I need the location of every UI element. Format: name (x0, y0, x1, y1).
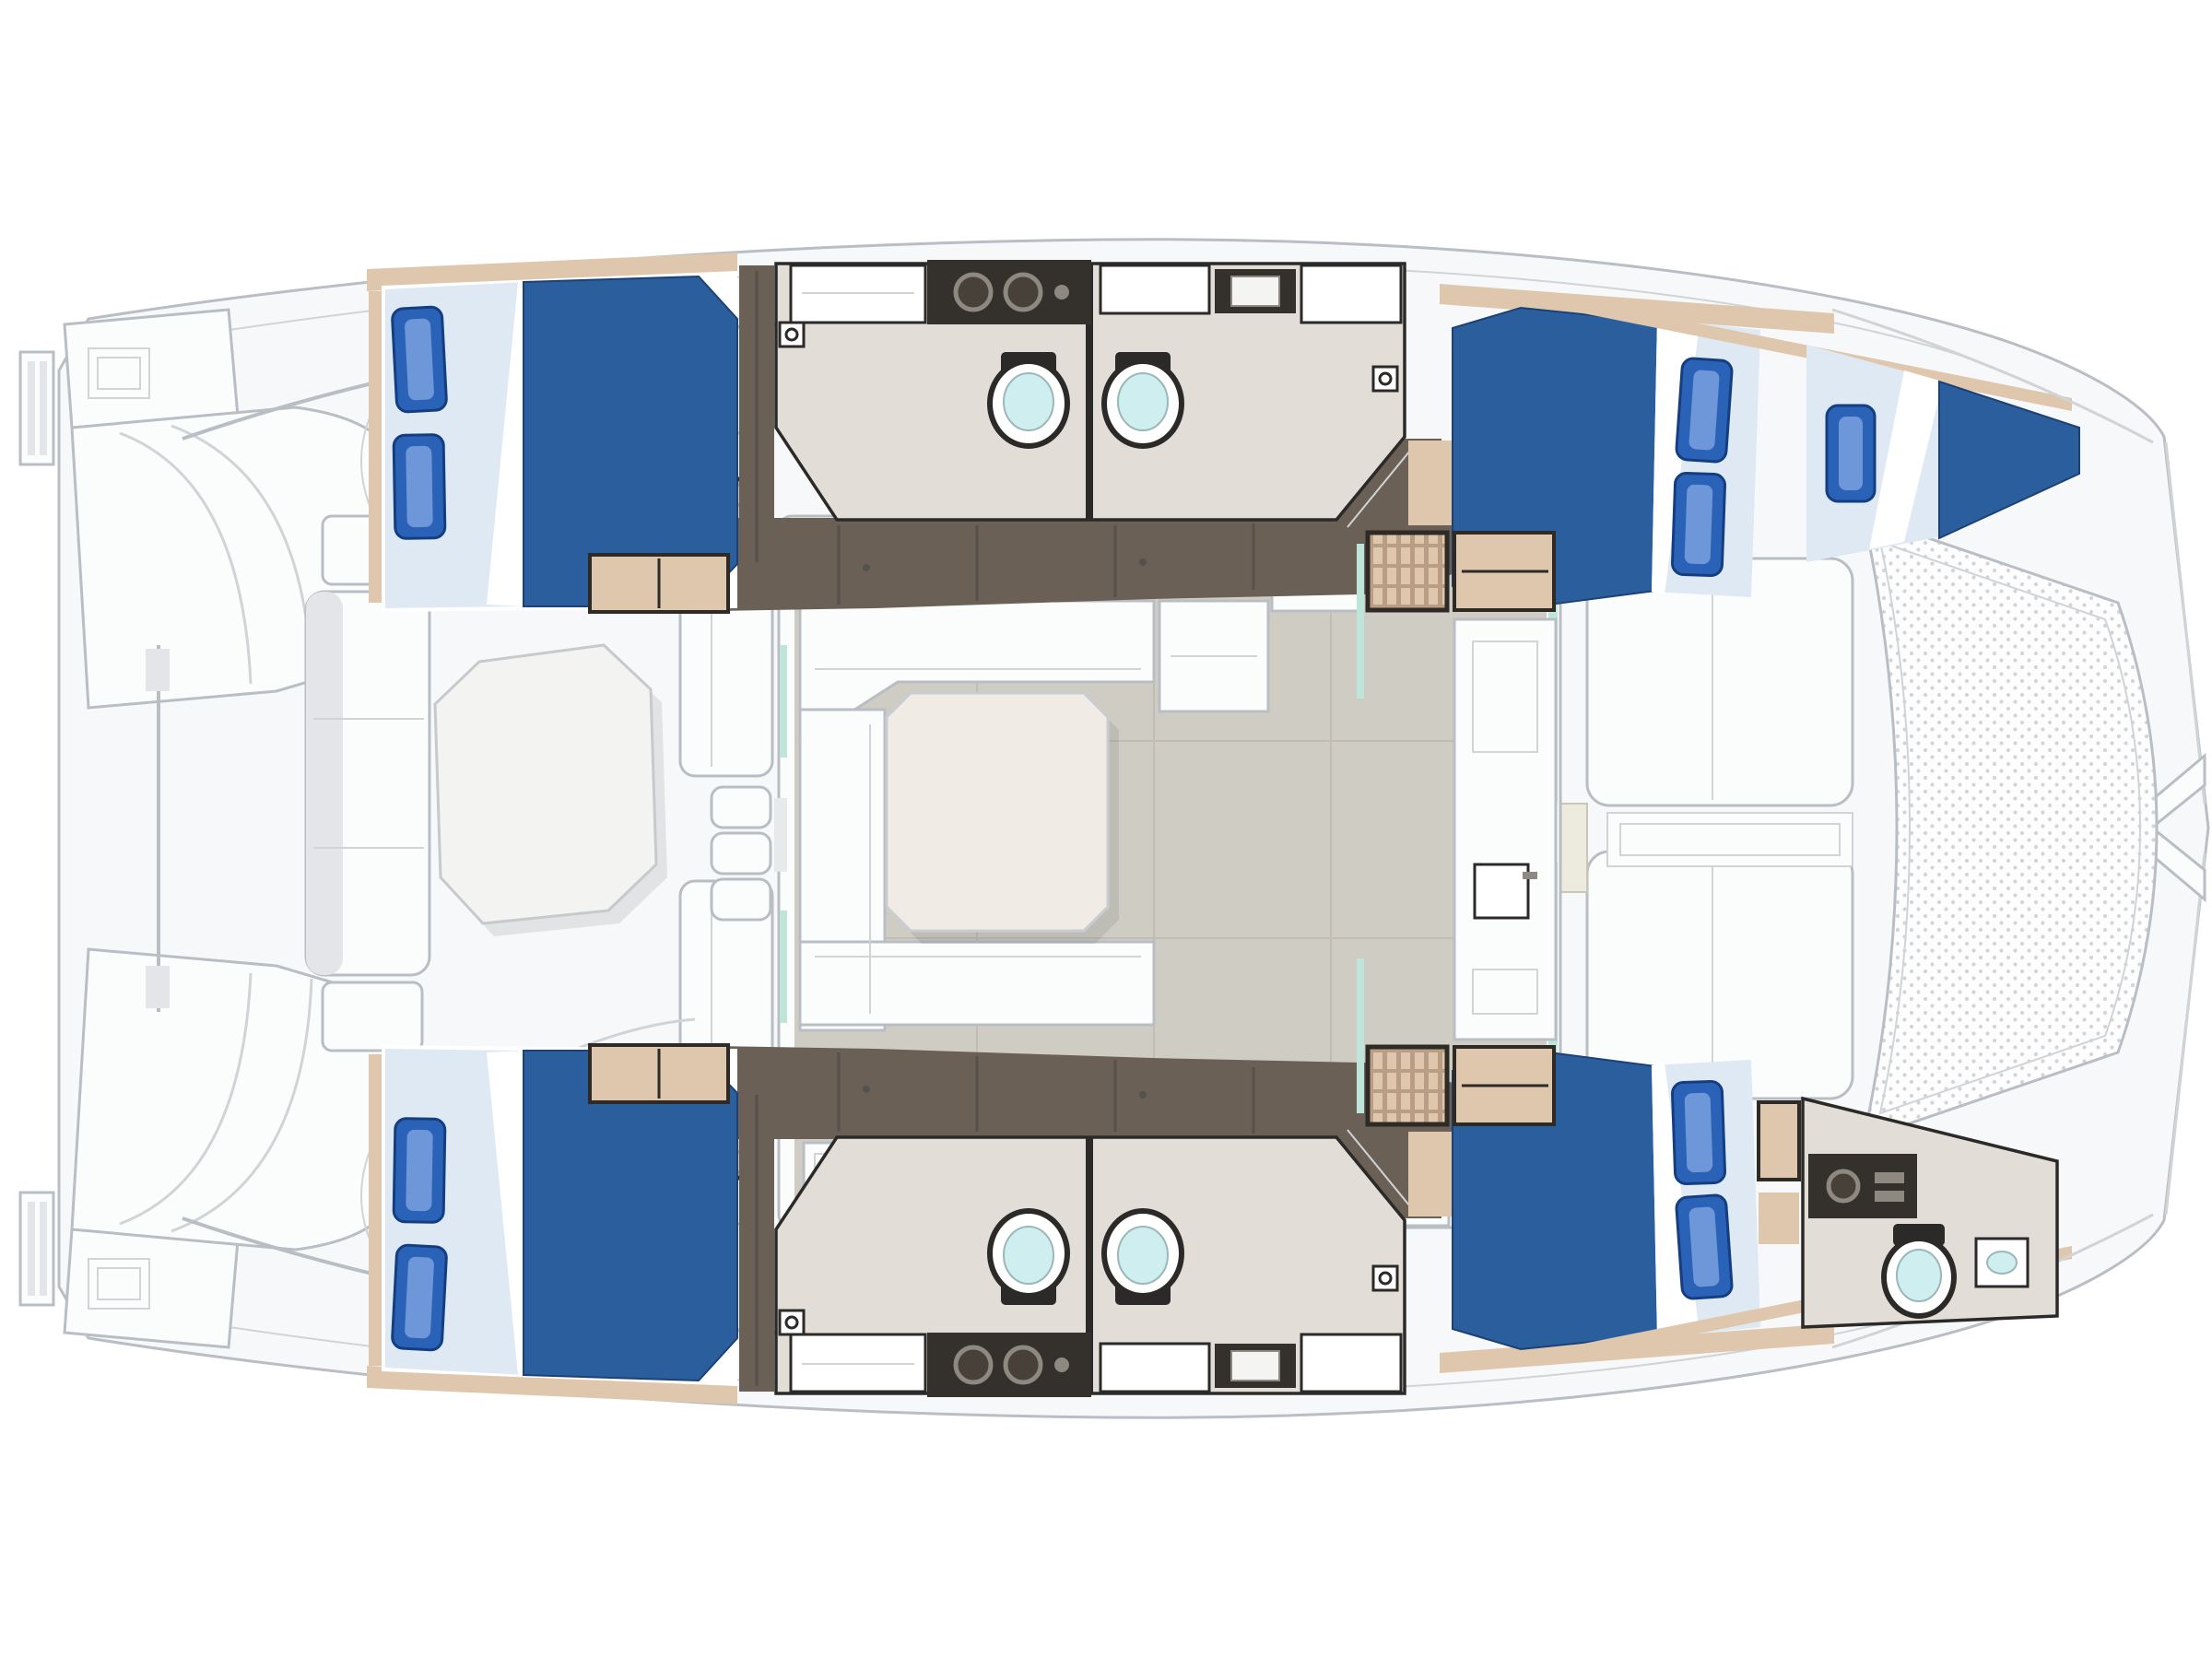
salon-window (780, 911, 787, 1023)
foredeck-walkway-channel (1607, 813, 1853, 866)
galley-drawer (1473, 970, 1537, 1014)
salon-table (887, 693, 1108, 931)
galley-fridge (1473, 641, 1537, 752)
bow-head-shelf (1759, 1102, 1799, 1180)
salon-window (780, 645, 787, 758)
toilet (1884, 1224, 1954, 1316)
catamaran-floor-plan (0, 0, 2212, 1657)
bow-head-sink (1976, 1239, 2028, 1287)
pillow (1827, 405, 1875, 501)
galley-side-sink (1475, 864, 1537, 918)
bow-head-shelf (1759, 1193, 1799, 1244)
bow-head-appliance (1808, 1154, 1917, 1218)
cockpit-table (435, 645, 656, 923)
stern-rail-fitting (146, 649, 170, 691)
trampoline-net (1864, 516, 2157, 1139)
stern-rail-fitting (146, 966, 170, 1008)
cockpit-sliding-door (774, 798, 787, 872)
floor-plan-canvas (0, 0, 2212, 1657)
cockpit-door-cushions (712, 787, 771, 920)
